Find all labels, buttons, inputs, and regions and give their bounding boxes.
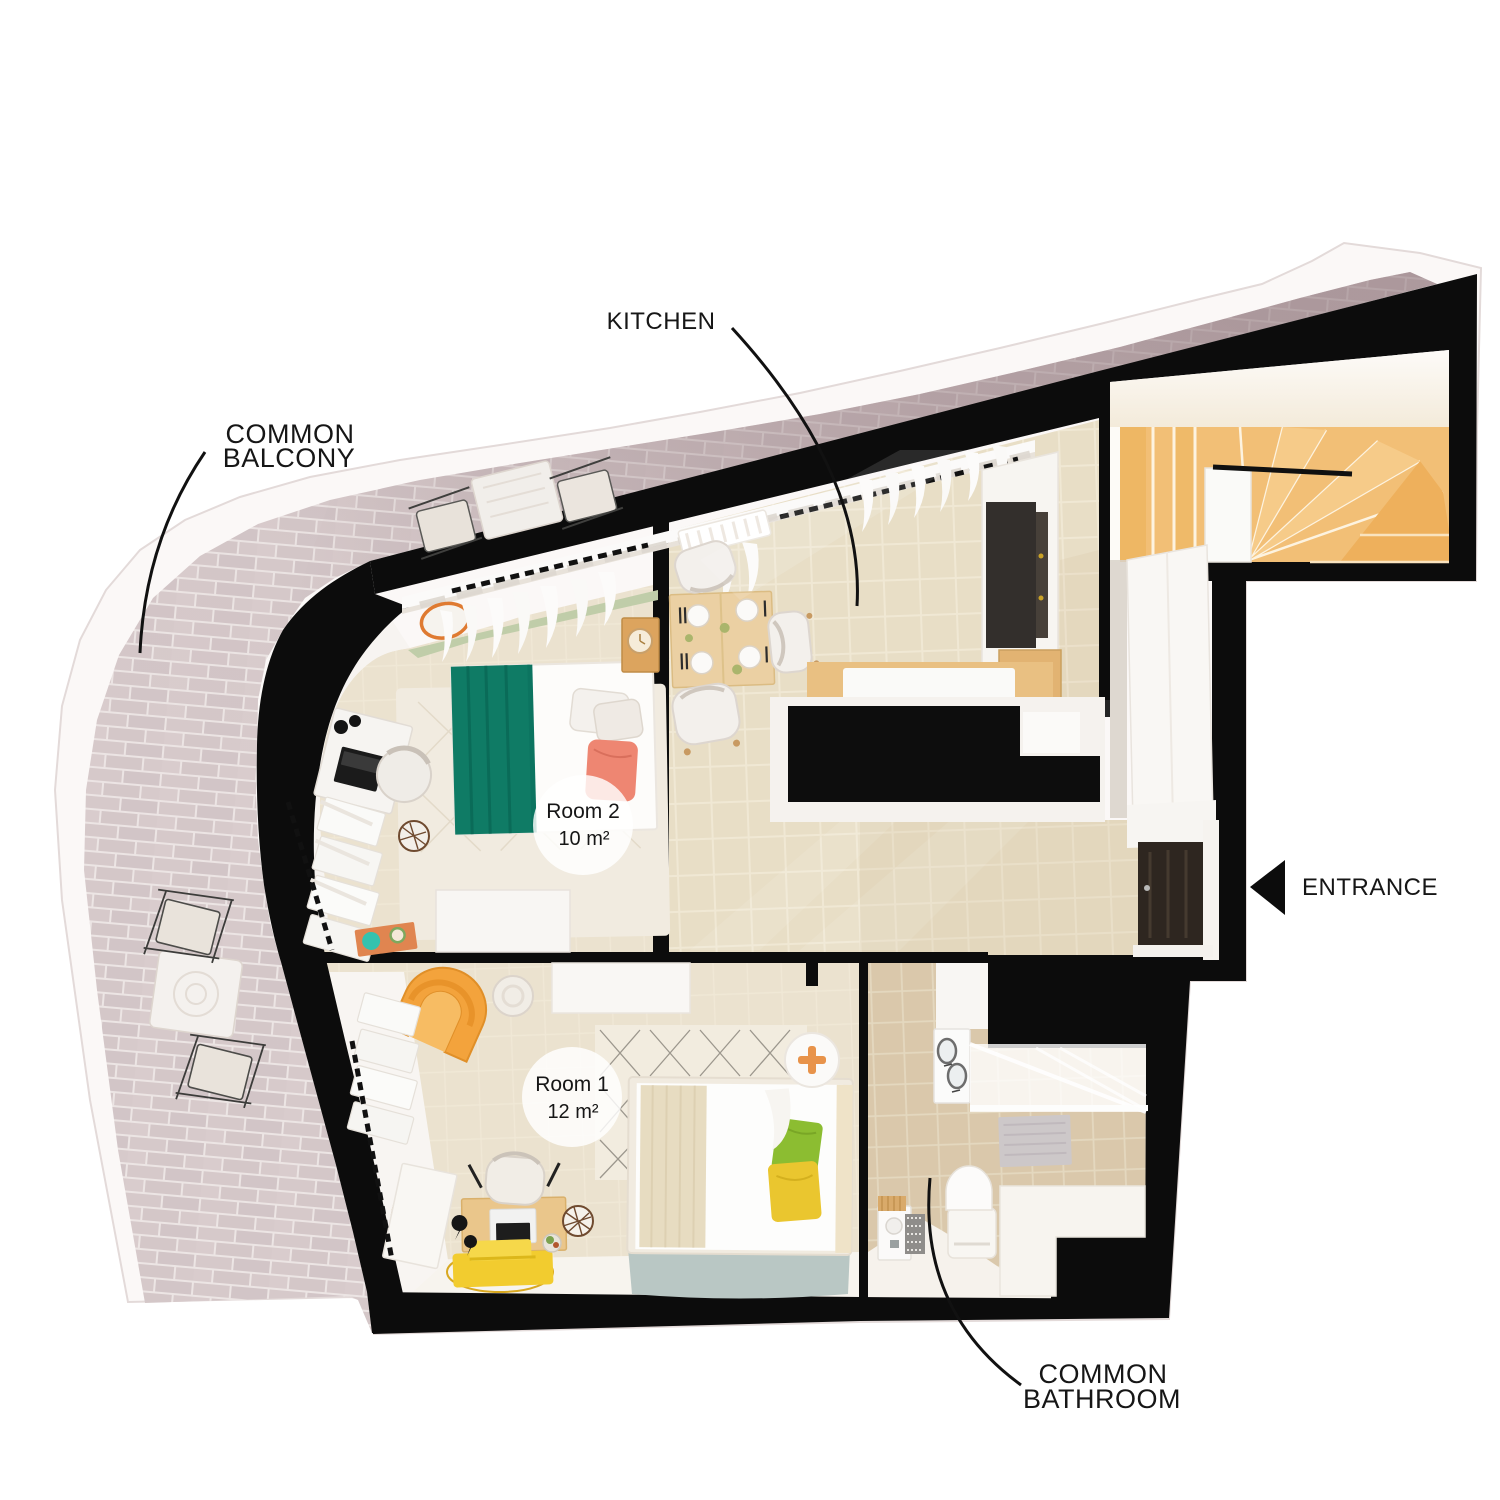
svg-text:BALCONY: BALCONY	[223, 443, 356, 473]
svg-text:Room 1: Room 1	[535, 1073, 609, 1096]
svg-text:12 m²: 12 m²	[547, 1101, 598, 1123]
svg-text:BATHROOM: BATHROOM	[1023, 1384, 1181, 1414]
svg-text:KITCHEN: KITCHEN	[607, 308, 716, 335]
svg-text:ENTRANCE: ENTRANCE	[1302, 874, 1438, 901]
svg-text:10 m²: 10 m²	[558, 828, 609, 850]
svg-text:Room 2: Room 2	[546, 800, 620, 823]
